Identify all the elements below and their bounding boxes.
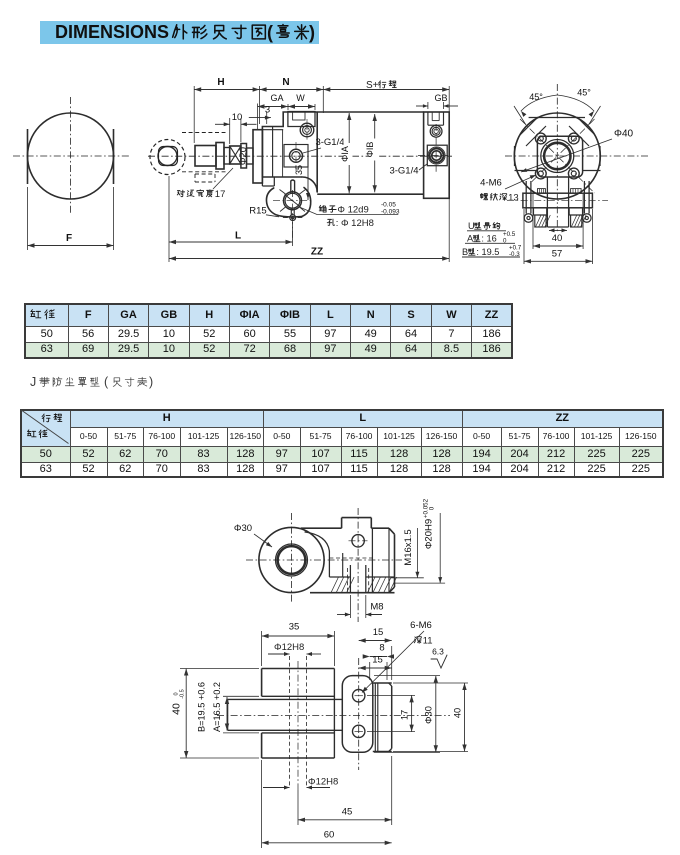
svg-text:Φ30: Φ30 [424, 706, 434, 724]
svg-text:: Φ 12H8: : Φ 12H8 [336, 218, 374, 229]
svg-text:M16x1.5: M16x1.5 [403, 529, 414, 565]
svg-text:(: ( [104, 375, 109, 389]
svg-text:ΦIA: ΦIA [340, 146, 350, 162]
svg-text:0: 0 [429, 506, 436, 510]
svg-text:40: 40 [552, 233, 563, 244]
svg-text:+0.7: +0.7 [509, 245, 522, 252]
svg-text:0: 0 [174, 692, 180, 695]
svg-text:4-M6: 4-M6 [480, 178, 502, 189]
svg-text:A: A [467, 234, 474, 244]
svg-text:B: B [462, 247, 468, 257]
svg-text:40: 40 [171, 703, 183, 715]
svg-text:Φ20: Φ20 [238, 147, 249, 165]
svg-text:A=16.5 +0.2: A=16.5 +0.2 [212, 682, 222, 732]
svg-text:10: 10 [232, 112, 243, 123]
svg-text:ΦIB: ΦIB [365, 142, 375, 158]
svg-text:Φ30: Φ30 [234, 523, 252, 534]
svg-text:+0.052: +0.052 [423, 498, 430, 518]
svg-text:13: 13 [508, 192, 519, 203]
svg-text:-0.5: -0.5 [180, 689, 186, 698]
svg-text:GA: GA [270, 93, 283, 103]
svg-text:: 16: : 16 [481, 234, 496, 244]
svg-text:+0.5: +0.5 [503, 231, 516, 238]
svg-text:R15: R15 [249, 206, 266, 217]
svg-text:17: 17 [400, 710, 410, 720]
svg-text:15: 15 [373, 627, 384, 638]
svg-text:-0.3: -0.3 [509, 251, 520, 258]
svg-text:35: 35 [294, 165, 304, 175]
svg-text:0: 0 [503, 238, 507, 245]
svg-text:15: 15 [372, 655, 383, 666]
svg-text:W: W [296, 93, 305, 103]
svg-text:35: 35 [289, 622, 300, 633]
svg-text:GB: GB [434, 93, 447, 103]
svg-text:B=19.5 +0.6: B=19.5 +0.6 [197, 682, 207, 732]
svg-text:45°: 45° [577, 88, 591, 98]
svg-text:Φ 12d9: Φ 12d9 [337, 204, 368, 215]
svg-text:6-M6: 6-M6 [410, 620, 432, 631]
svg-text:Φ12H8: Φ12H8 [308, 776, 338, 787]
svg-text:): ) [149, 375, 153, 389]
svg-text:: 19.5: : 19.5 [476, 247, 499, 257]
svg-text:U: U [468, 221, 475, 231]
svg-text:11: 11 [423, 635, 433, 646]
svg-text:3-G1/4: 3-G1/4 [389, 166, 418, 177]
svg-text:8: 8 [379, 643, 384, 654]
svg-text:H: H [217, 77, 224, 88]
svg-text:S+: S+ [366, 80, 379, 91]
svg-text:-0.093: -0.093 [381, 209, 400, 216]
svg-text:3: 3 [265, 105, 270, 116]
svg-text:45°: 45° [529, 92, 543, 102]
svg-text:N: N [282, 77, 289, 88]
svg-text:L: L [235, 231, 241, 242]
svg-text:M8: M8 [370, 602, 383, 613]
svg-text:ZZ: ZZ [311, 247, 323, 258]
svg-text:17: 17 [215, 189, 226, 200]
svg-text:Φ12H8: Φ12H8 [274, 642, 304, 653]
svg-text:6.3: 6.3 [432, 647, 444, 657]
svg-text:45: 45 [342, 807, 353, 818]
svg-text:40: 40 [453, 708, 463, 718]
svg-text:-0.05: -0.05 [381, 202, 396, 209]
svg-text:Φ40: Φ40 [614, 129, 634, 140]
svg-text:3-G1/4: 3-G1/4 [315, 137, 344, 148]
svg-text:60: 60 [324, 830, 335, 841]
svg-text:F: F [66, 233, 72, 244]
svg-text:Φ20H9: Φ20H9 [424, 519, 435, 549]
svg-text:57: 57 [552, 248, 563, 259]
svg-text:J: J [30, 375, 36, 389]
